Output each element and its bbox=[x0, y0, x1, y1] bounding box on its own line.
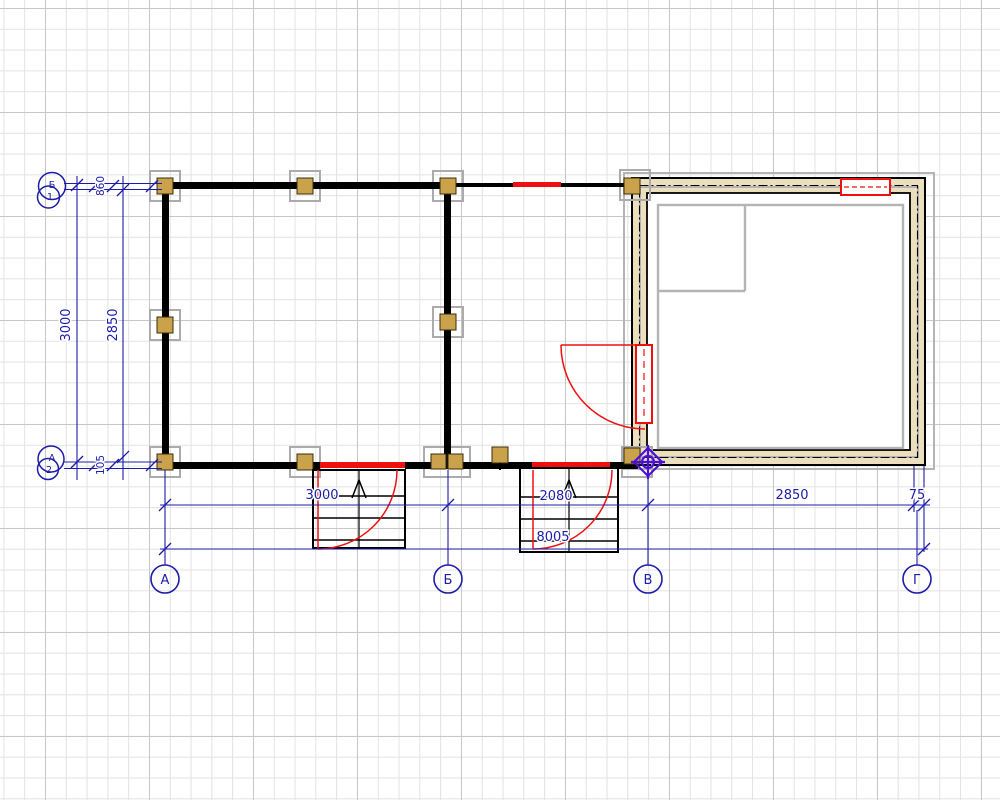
dim-bottom-seg4: 75 bbox=[909, 488, 926, 503]
axis-label-a: А bbox=[161, 573, 170, 588]
dim-left-inner: 2850 bbox=[106, 308, 121, 341]
timber-annex bbox=[632, 178, 925, 465]
axis-left-bottom-number: 2 bbox=[46, 465, 52, 476]
dim-left-bottom-small: 105 bbox=[95, 455, 107, 475]
window-annex bbox=[841, 179, 890, 195]
column-reference-boxes bbox=[150, 170, 652, 477]
door-annex bbox=[561, 345, 652, 429]
axis-label-v: В bbox=[644, 573, 653, 588]
axis-bubbles-bottom bbox=[151, 565, 931, 593]
walls bbox=[162, 182, 638, 469]
stairs-left bbox=[313, 470, 405, 548]
columns bbox=[157, 178, 640, 470]
dim-bottom-total: 8005 bbox=[536, 530, 569, 545]
dim-left-total: 3000 bbox=[59, 308, 74, 341]
floor-plan: А Б В Г Б 1 А 2 3000 2080 2850 75 8005 3… bbox=[0, 0, 1000, 800]
wall-openings bbox=[320, 182, 610, 468]
axis-left-bottom-letter: А bbox=[49, 453, 56, 464]
dim-left-top-small: 860 bbox=[95, 176, 107, 196]
axis-left-top-letter: Б bbox=[49, 180, 56, 191]
dim-bottom-seg2: 2080 bbox=[539, 489, 572, 504]
axis-label-g: Г bbox=[913, 573, 921, 588]
cad-drawing-canvas[interactable]: А Б В Г Б 1 А 2 3000 2080 2850 75 8005 3… bbox=[0, 0, 1000, 800]
dim-bottom-seg1: 3000 bbox=[305, 488, 338, 503]
dim-bottom-seg3: 2850 bbox=[775, 488, 808, 503]
axis-label-b: Б bbox=[444, 573, 453, 588]
axis-left-top-number: 1 bbox=[47, 192, 53, 203]
